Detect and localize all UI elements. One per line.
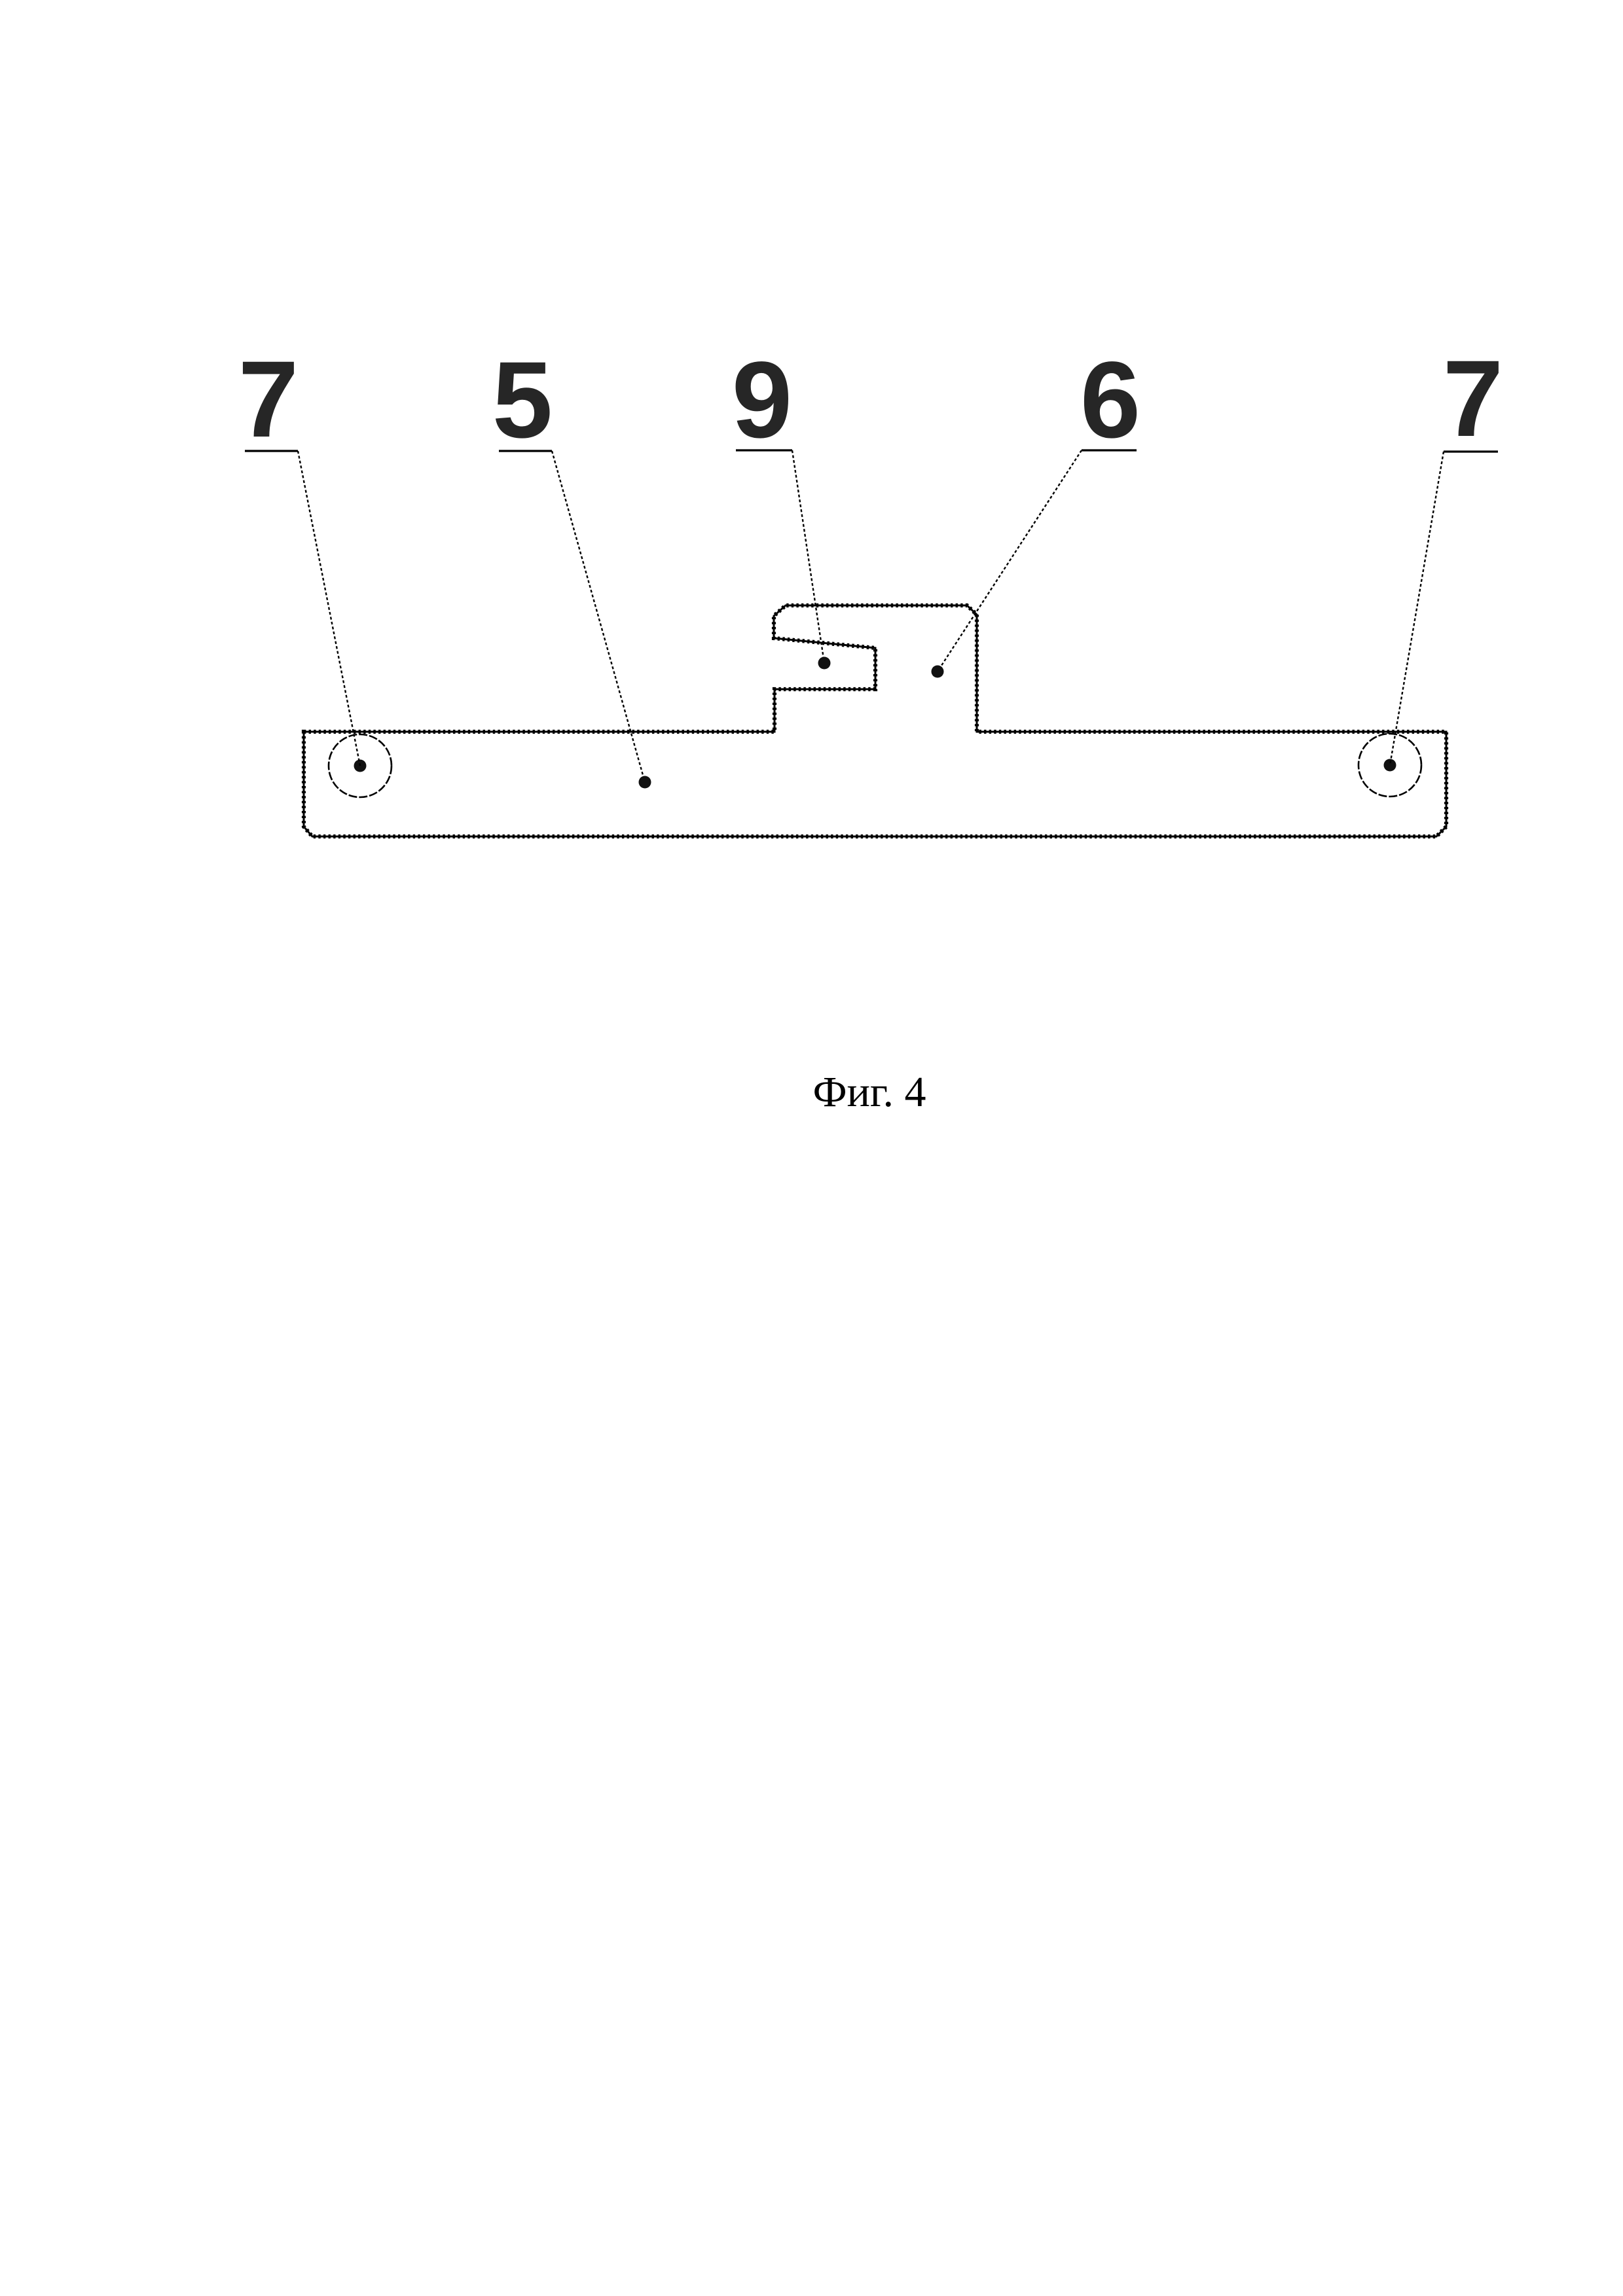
svg-text:6: 6 xyxy=(1080,340,1140,461)
svg-text:7: 7 xyxy=(238,339,299,460)
svg-text:5: 5 xyxy=(492,340,553,461)
svg-text:7: 7 xyxy=(1443,338,1503,459)
svg-text:9: 9 xyxy=(732,340,792,461)
svg-text:Фиг. 4: Фиг. 4 xyxy=(812,1068,926,1116)
